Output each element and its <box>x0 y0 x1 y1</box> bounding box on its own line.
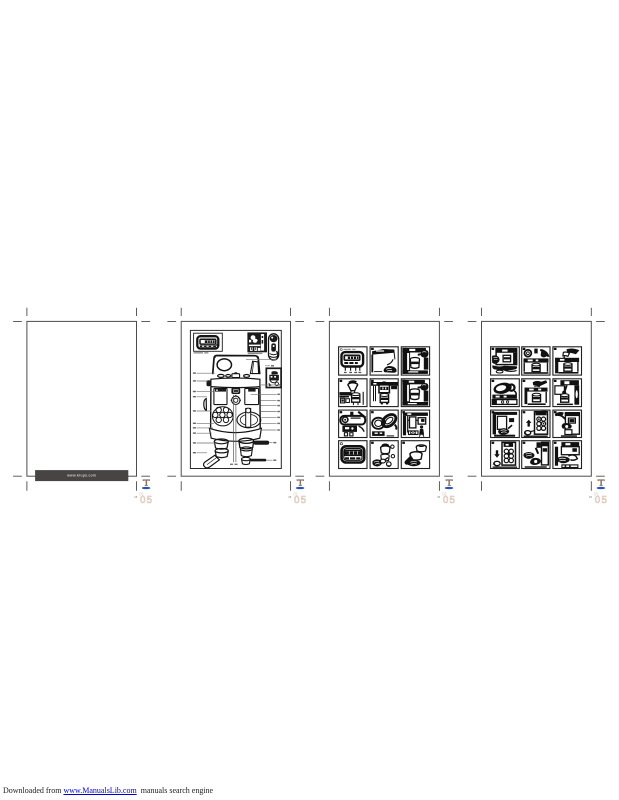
svg-text:05: 05 <box>140 495 153 506</box>
svg-text:05: 05 <box>294 495 307 506</box>
svg-text:www.krups.com: www.krups.com <box>67 474 96 478</box>
svg-text:05: 05 <box>595 495 608 506</box>
svg-text:05: 05 <box>443 495 456 506</box>
svg-text:15: 15 <box>589 495 592 499</box>
svg-text:15: 15 <box>288 495 291 499</box>
svg-text:15: 15 <box>437 495 440 499</box>
svg-text:15: 15 <box>134 495 137 499</box>
